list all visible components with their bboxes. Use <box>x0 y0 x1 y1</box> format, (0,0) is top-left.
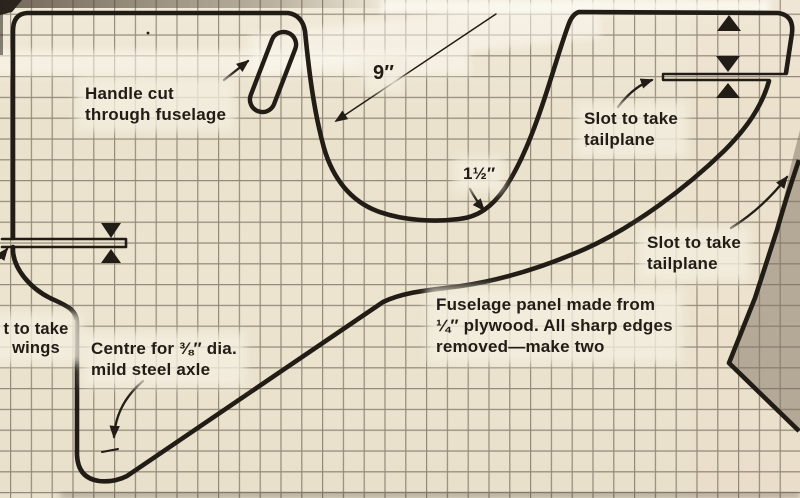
saddle-depth-label: 1½″ <box>461 164 497 185</box>
axle-note: Centre for ⅜″ dia. mild steel axle <box>89 339 239 380</box>
scanned-plan-page: Handle cut through fuselage 9″ 1½″ Slot … <box>0 0 800 498</box>
tailplane-slot-lower-note: Slot to take tailplane <box>645 233 743 274</box>
panel-note: Fuselage panel made from ¼″ plywood. All… <box>434 294 675 357</box>
radius-label: 9″ <box>371 62 396 84</box>
tailplane-slot-upper-note: Slot to take tailplane <box>582 109 680 150</box>
handle-note: Handle cut through fuselage <box>83 84 228 125</box>
wing-slot-note: t to take wings <box>0 320 76 357</box>
